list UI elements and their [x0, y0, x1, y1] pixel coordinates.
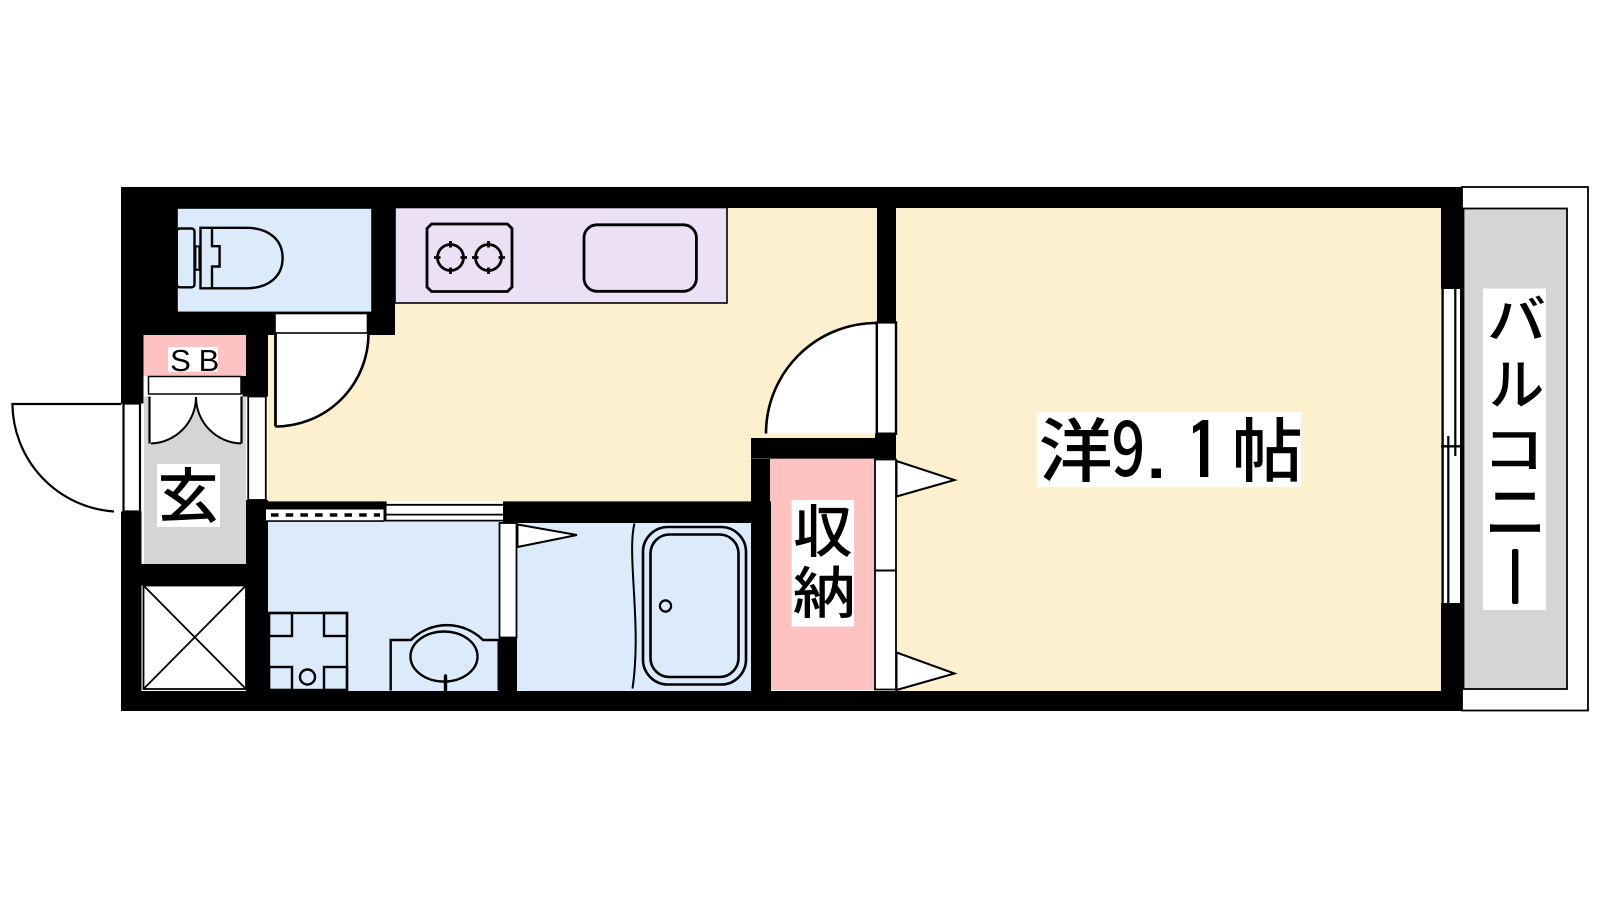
svg-text:B: B [199, 343, 220, 378]
svg-text:S: S [170, 343, 191, 378]
